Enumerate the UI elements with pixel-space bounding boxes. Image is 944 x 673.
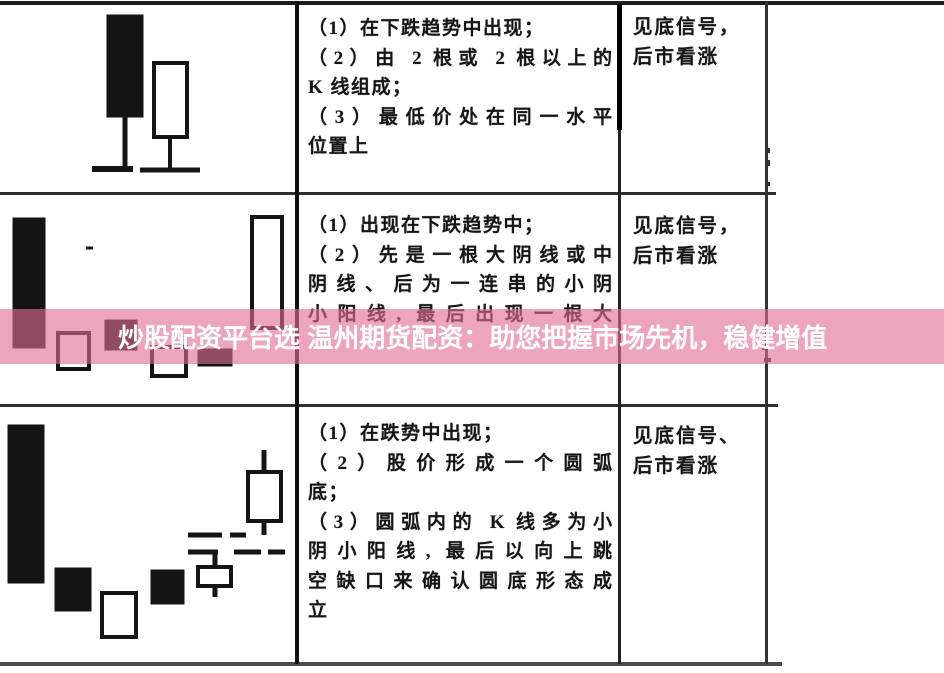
bearish-candle-body [151,570,184,604]
candlestick-diagram-row3 [2,404,295,664]
criteria-line: （3）最低价处在同一水平 [308,103,612,133]
column-divider-2-dark-segment [617,4,622,130]
scanned-candlestick-table-page: （1）在下跌趋势中出现； （2）由 2 根或 2 根以上的 K 线组成； （3）… [0,0,944,673]
criteria-cell-row3: （1）在跌势中出现； （2）股价形成一个圆弧 底； （3）圆弧内的 K 线多为小… [308,419,612,626]
signal-cell-row2: 见底信号， 后市看涨 [633,212,765,272]
criteria-line: 阴小阳线, 最后以向上跳 [308,537,612,567]
bearish-candle-body [8,425,44,583]
signal-line: 见底信号、 [633,422,765,452]
criteria-line: （3）圆弧内的 K 线多为小 [308,508,612,538]
criteria-line: 位置上 [308,132,612,162]
ad-banner-overlay[interactable]: 炒股配资平台选 温州期货配资：助您把握市场先机，稳健增值 [0,309,944,364]
signal-line: 后市看涨 [633,452,765,482]
criteria-cell-row1: （1）在下跌趋势中出现； （2）由 2 根或 2 根以上的 K 线组成； （3）… [308,14,612,162]
ad-banner-text[interactable]: 炒股配资平台选 温州期货配资：助您把握市场先机，稳健增值 [0,318,827,355]
signal-line: 见底信号， [633,212,765,242]
scan-speck [767,182,770,186]
bullish-candle-body [154,63,187,137]
criteria-line: 阴线、后为一连串的小阴 [308,270,612,300]
criteria-line: 立 [308,596,612,626]
signal-cell-row3: 见底信号、 后市看涨 [633,422,765,482]
signal-line: 后市看涨 [633,43,765,73]
criteria-line: K 线组成； [308,73,612,103]
bullish-candle-body [198,567,231,586]
criteria-line: 底； [308,478,612,508]
criteria-line: 空缺口来确认圆底形态成 [308,567,612,597]
scan-speck [765,160,770,166]
candlestick-diagram-row2 [2,193,295,404]
bearish-candle-body [55,568,91,611]
bullish-candle-body [102,593,136,637]
bearish-candle-body [107,15,143,117]
criteria-line: （2）由 2 根或 2 根以上的 [308,44,612,74]
signal-line: 后市看涨 [633,242,765,272]
criteria-line: （1）出现在下跌趋势中； [308,211,612,241]
signal-cell-row1: 见底信号， 后市看涨 [633,13,765,73]
criteria-line: （2）先是一根大阴线或中 [308,241,612,271]
scan-speck [766,148,770,153]
signal-line: 见底信号， [633,13,765,43]
criteria-line: （1）在跌势中出现； [308,419,612,449]
criteria-line: （1）在下跌趋势中出现； [308,14,612,44]
criteria-line: （2）股价形成一个圆弧 [308,449,612,479]
bullish-candle-body [248,472,281,521]
candlestick-diagram-row1 [2,4,295,193]
